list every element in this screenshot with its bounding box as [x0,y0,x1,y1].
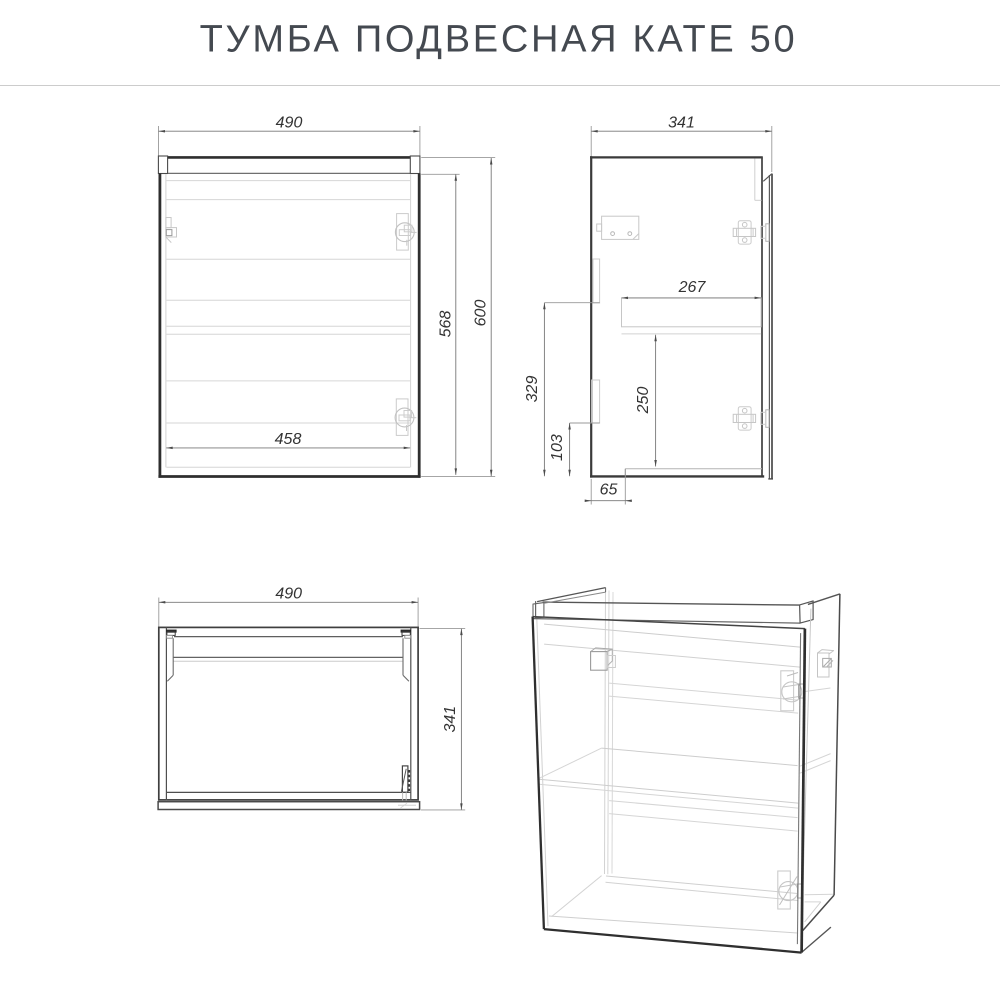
svg-text:490: 490 [276,115,303,132]
svg-text:329: 329 [524,376,541,403]
svg-text:600: 600 [473,300,490,327]
svg-text:103: 103 [549,434,566,461]
svg-text:267: 267 [678,279,707,296]
svg-text:250: 250 [635,387,652,415]
svg-text:341: 341 [668,115,695,132]
svg-text:ТУМБА ПОДВЕСНАЯ КАТЕ 50: ТУМБА ПОДВЕСНАЯ КАТЕ 50 [200,19,798,61]
svg-text:341: 341 [442,706,459,733]
svg-text:490: 490 [275,586,302,603]
svg-text:458: 458 [275,431,302,448]
svg-text:568: 568 [437,311,454,338]
svg-text:65: 65 [600,482,618,499]
